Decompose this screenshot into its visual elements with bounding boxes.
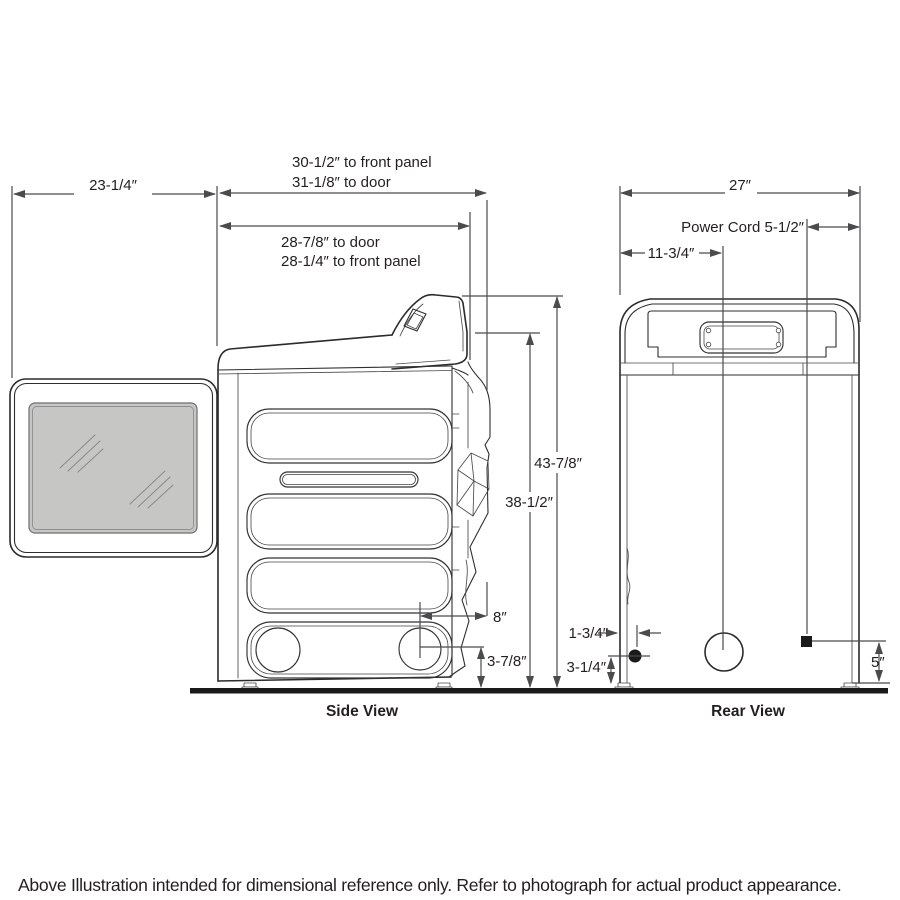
label-total-height: 43-7/8″ bbox=[534, 455, 583, 472]
caption-text: Above Illustration intended for dimensio… bbox=[18, 875, 841, 895]
label-inlet-offset: 1-3/4″ bbox=[569, 625, 609, 642]
label-exhaust-height: 3-7/8″ bbox=[487, 653, 527, 670]
technical-drawing: 30-1/2″ to front panel 31-1/8″ to door 2… bbox=[0, 0, 900, 900]
faceted-trim-detail bbox=[457, 453, 489, 516]
top-seam-line bbox=[218, 366, 452, 370]
rear-view-title: Rear View bbox=[711, 703, 786, 720]
label-power-cord: Power Cord 5-1/2″ bbox=[681, 219, 805, 236]
power-cord-marker bbox=[801, 636, 812, 647]
dimension-diagram-page: 30-1/2″ to front panel 31-1/8″ to door 2… bbox=[0, 0, 900, 900]
side-view-body bbox=[218, 295, 490, 691]
side-vent-ticks bbox=[452, 414, 459, 570]
label-body-height: 38-1/2″ bbox=[505, 494, 554, 511]
door-glass-window bbox=[29, 403, 197, 533]
screw-icon bbox=[706, 328, 711, 333]
body-left-top-outline bbox=[218, 335, 392, 681]
rear-handle-cutout bbox=[700, 322, 783, 353]
rear-edge-wavy-detail bbox=[627, 548, 630, 604]
side-view-door-panel bbox=[10, 379, 217, 557]
rear-console-inner-line bbox=[625, 304, 854, 363]
label-door-open-depth: 23-1/4″ bbox=[89, 177, 138, 194]
control-console bbox=[392, 295, 467, 369]
label-depth-front-panel: 30-1/2″ to front panel bbox=[292, 154, 432, 171]
label-exhaust-offset: 8″ bbox=[493, 609, 507, 626]
side-recessed-panels bbox=[247, 409, 452, 678]
label-vent-offset: 11-3/4″ bbox=[648, 245, 695, 262]
label-upper-to-front-panel: 28-1/4″ to front panel bbox=[281, 253, 421, 270]
view-titles: Side View Rear View bbox=[326, 703, 786, 720]
rear-view-body bbox=[615, 299, 859, 691]
label-upper-to-door: 28-7/8″ to door bbox=[281, 234, 380, 251]
rear-view-dimensions bbox=[598, 186, 890, 683]
exhaust-knockout-left bbox=[256, 628, 300, 672]
floor-line bbox=[190, 688, 888, 694]
front-trim-contour bbox=[449, 362, 490, 677]
screw-icon bbox=[776, 328, 781, 333]
label-width: 27″ bbox=[729, 177, 752, 194]
label-cord-height: 5″ bbox=[871, 654, 885, 671]
label-depth-door: 31-1/8″ to door bbox=[292, 174, 391, 191]
screw-icon bbox=[706, 342, 711, 347]
exhaust-vent-circle bbox=[705, 633, 743, 671]
rear-console-face bbox=[648, 311, 836, 357]
label-inlet-height: 3-1/4″ bbox=[567, 659, 607, 676]
side-view-title: Side View bbox=[326, 703, 399, 720]
screw-icon bbox=[776, 342, 781, 347]
